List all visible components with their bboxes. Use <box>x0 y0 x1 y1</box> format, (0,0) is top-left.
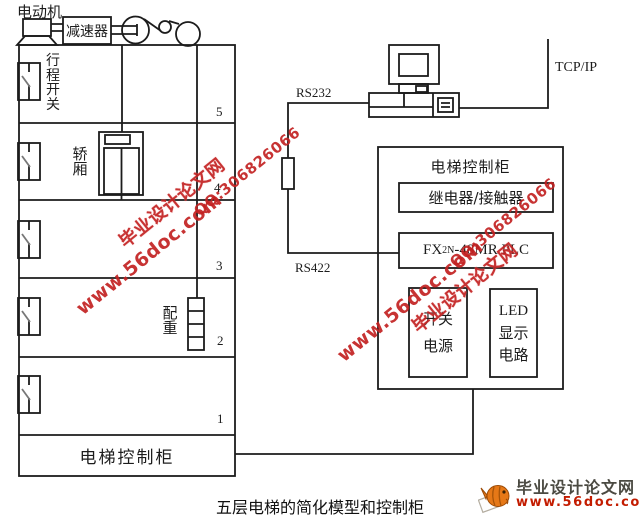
site-logo: 毕业设计论文网 www.56doc.com <box>478 479 641 517</box>
floor-number-3: 3 <box>216 258 223 274</box>
tcpip-label: TCP/IP <box>555 60 597 76</box>
site-logo-text: 毕业设计论文网 www.56doc.com <box>516 479 641 510</box>
computer-symbol <box>369 45 459 117</box>
rs232-label: RS232 <box>296 85 331 101</box>
floor-number-1: 1 <box>217 411 224 427</box>
travel-switch-label: 行程开关 <box>45 54 61 112</box>
model-cabinet-label: 电梯控制柜 <box>19 437 235 473</box>
cabinet-title: 电梯控制柜 <box>378 156 563 176</box>
reducer-label: 减速器 <box>63 17 111 44</box>
elevator-diagram: 电动机 减速器 行程开关 轿厢 配重 5 4 3 2 1 电梯控制柜 RS232… <box>0 0 641 519</box>
tcpip-wire <box>459 39 548 108</box>
led-circuit-label: LED 显示 电路 <box>490 289 537 377</box>
system-unit <box>369 93 459 117</box>
rs232-rs422-wire <box>288 103 399 253</box>
floor-number-5: 5 <box>216 104 223 120</box>
travel-switch-symbols <box>18 63 40 413</box>
car-label: 轿厢 <box>72 147 88 176</box>
floor-number-2: 2 <box>217 333 224 349</box>
converter-box <box>282 158 294 189</box>
site-logo-url: www.56doc.com <box>516 496 641 510</box>
motor-base <box>17 36 57 45</box>
monitor-screen <box>399 54 428 76</box>
disk-drive <box>438 98 453 112</box>
motor-label: 电动机 <box>17 1 62 22</box>
rs422-label: RS422 <box>295 260 330 276</box>
counterweight-sheave <box>176 22 200 46</box>
cabinet-to-model-wire <box>235 389 473 454</box>
site-logo-name: 毕业设计论文网 <box>516 479 641 496</box>
plc-prefix: FX <box>423 242 442 259</box>
monitor <box>389 45 439 84</box>
figure-caption: 五层电梯的简化模型和控制柜 <box>200 494 440 518</box>
counterweight-label: 配重 <box>162 306 178 335</box>
fish-logo-icon <box>478 479 514 517</box>
